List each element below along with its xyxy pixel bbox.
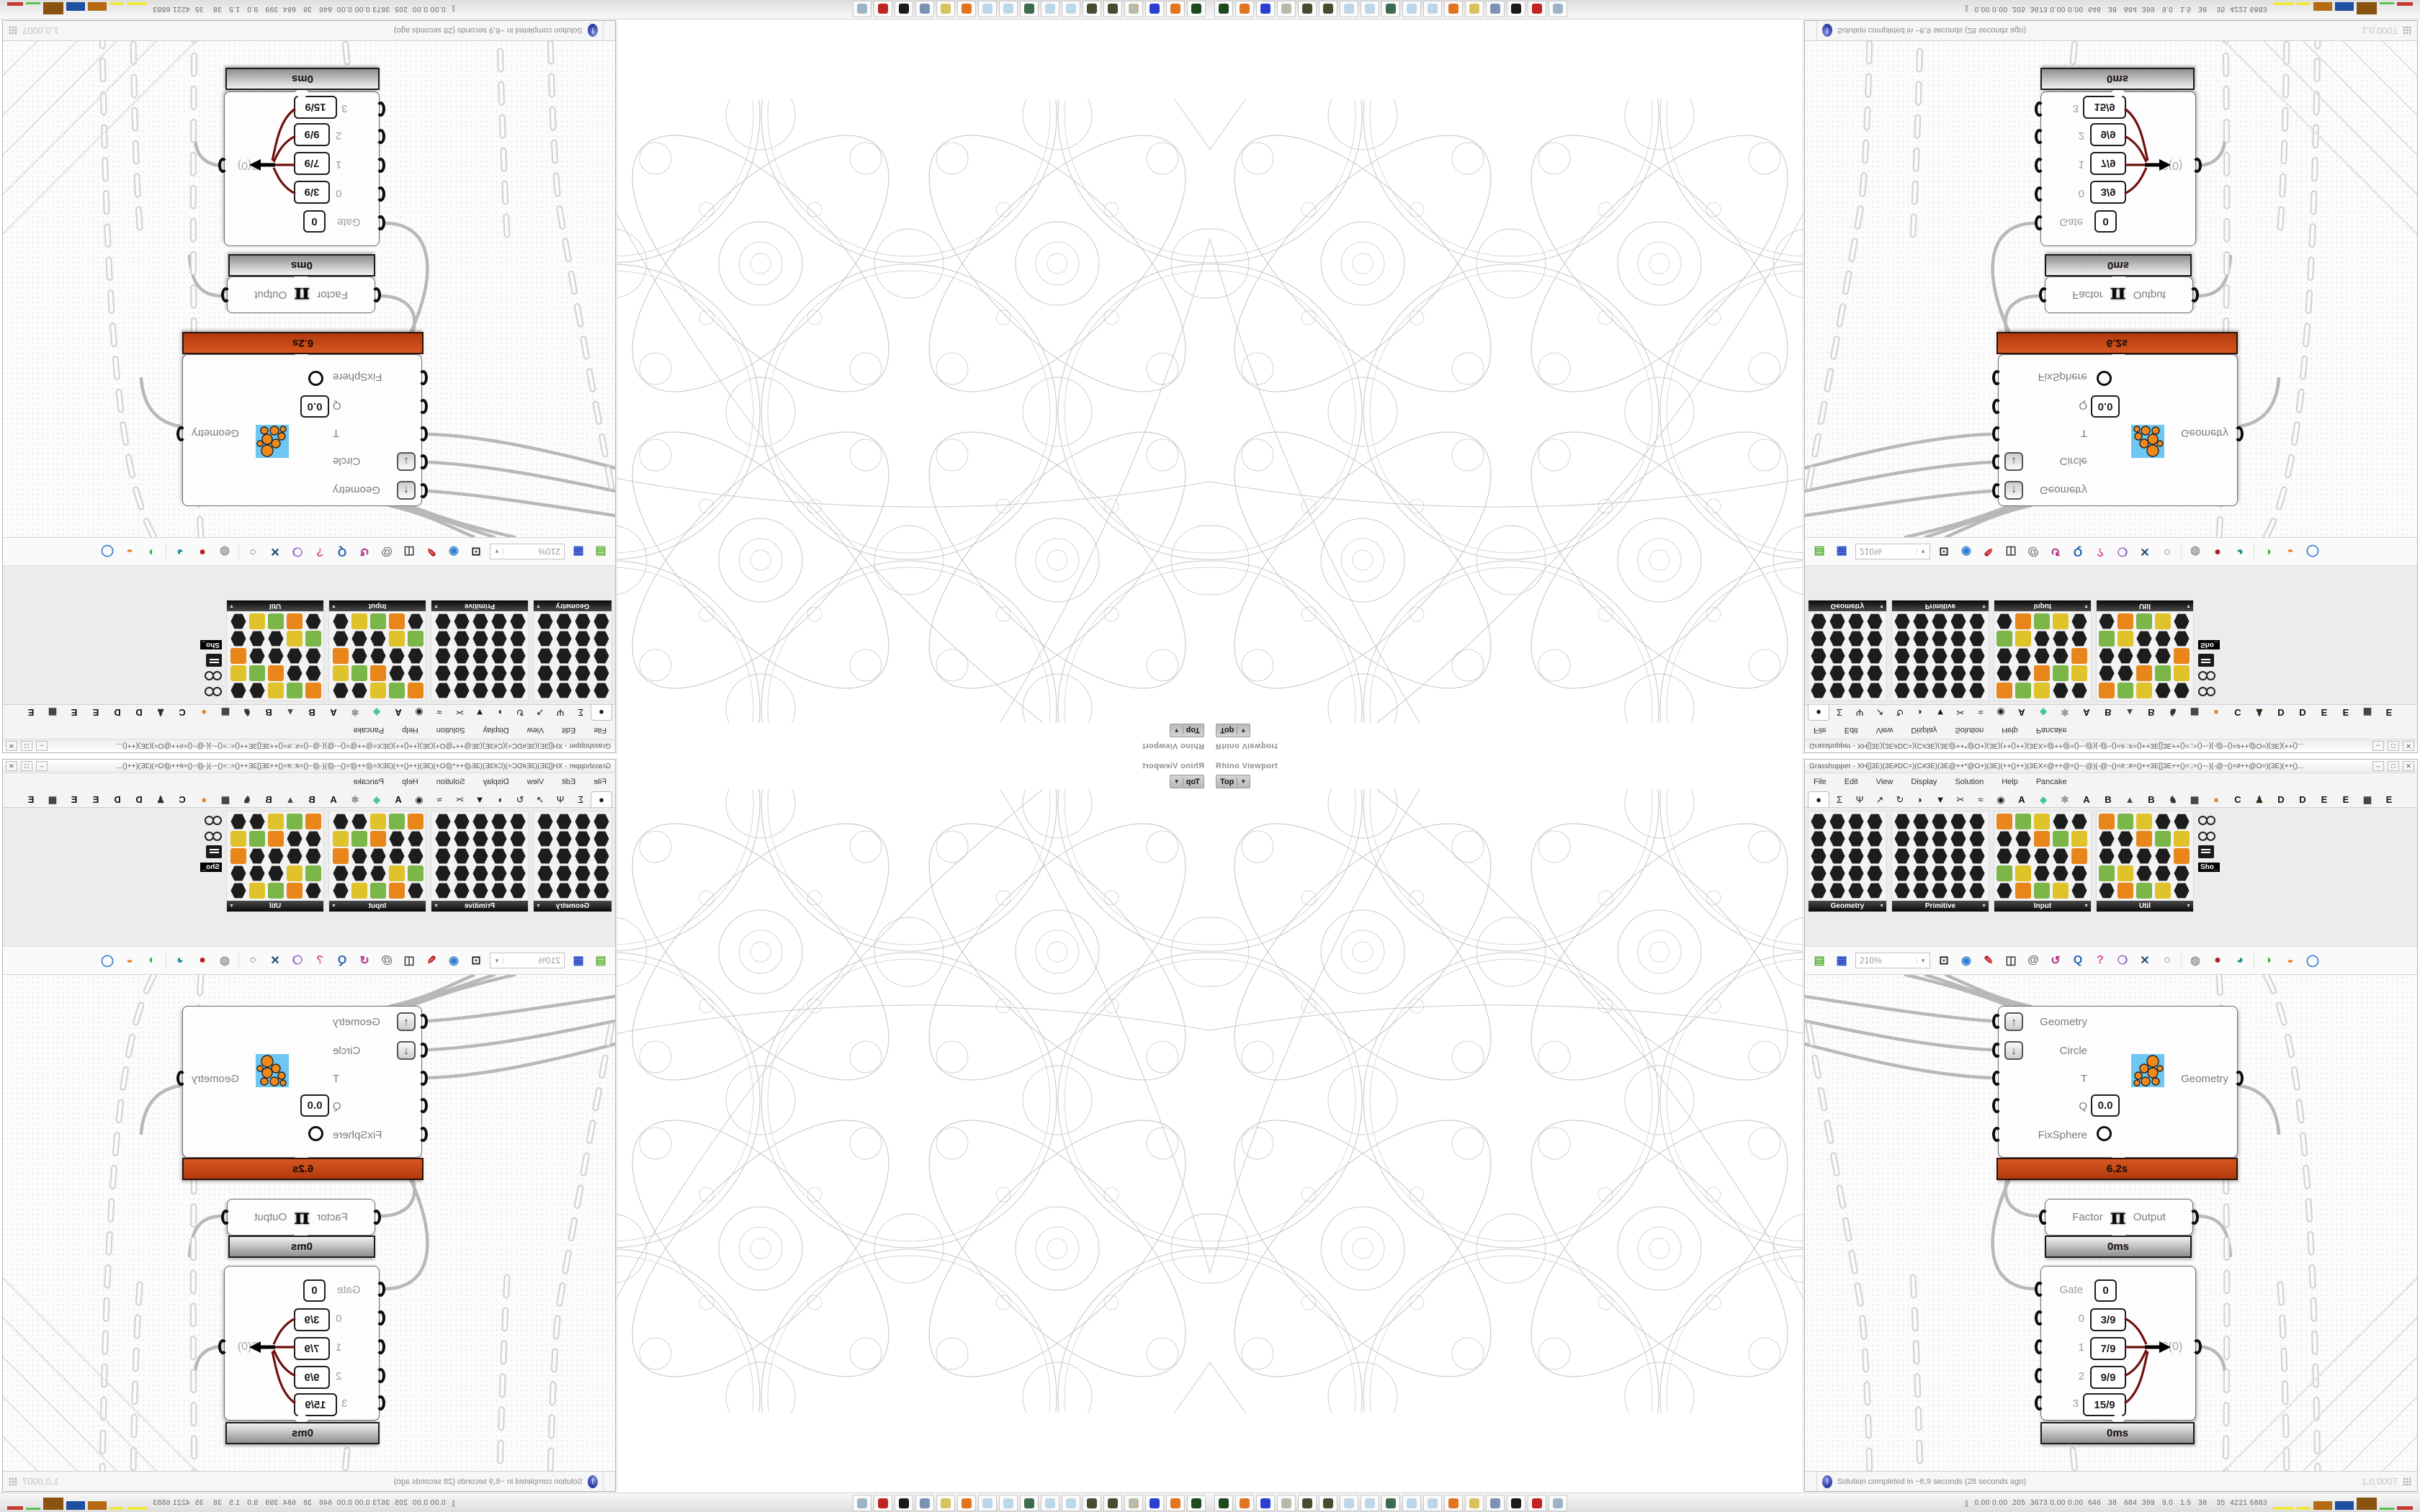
palette-icon[interactable] xyxy=(370,665,386,681)
tab-display[interactable]: ◉ xyxy=(1991,792,2011,807)
sketch-tool-icon[interactable]: ✎ xyxy=(1980,543,1997,560)
palette-icon[interactable] xyxy=(1932,665,1948,681)
input-socket-q[interactable] xyxy=(1992,1098,2002,1113)
preview-custom-icon[interactable]: ◍ xyxy=(2187,952,2204,969)
red-emblem-icon[interactable] xyxy=(1528,1,1546,17)
grasshopper-canvas[interactable]: ↑ ↓ Geometry Circle T Q FixSphere 0.0 xyxy=(3,41,615,537)
maximize-button[interactable]: □ xyxy=(2388,741,2399,751)
palette-icon[interactable] xyxy=(351,848,367,864)
floppy-64-icon[interactable] xyxy=(1145,1,1164,17)
plugin-tab-17[interactable]: E xyxy=(20,792,42,807)
plugin-tab-15[interactable]: E xyxy=(2335,792,2357,807)
palette-icon[interactable] xyxy=(287,613,302,629)
tab-vector[interactable]: ↗ xyxy=(1870,705,1890,720)
palette-icon[interactable] xyxy=(1867,683,1883,698)
canvas-zoom-select[interactable]: 210% ▼ xyxy=(490,953,565,968)
zoom-extents-icon[interactable]: ⊡ xyxy=(467,543,485,560)
palette-icon[interactable] xyxy=(2034,814,2050,829)
plugin-tab-10[interactable]: C xyxy=(171,705,193,720)
sketch-tool-icon[interactable]: ✎ xyxy=(423,952,440,969)
palette-icon[interactable] xyxy=(593,848,609,864)
palette-icon[interactable] xyxy=(2071,665,2087,681)
tab-mesh[interactable]: ▼ xyxy=(1930,792,1950,807)
palette-icon[interactable] xyxy=(1829,883,1845,899)
palette-icon[interactable] xyxy=(575,613,591,629)
input-socket-t[interactable] xyxy=(418,1071,428,1086)
tab-maths[interactable]: Σ xyxy=(570,792,591,807)
palette-icon[interactable] xyxy=(1894,865,1910,881)
chevron-down-icon[interactable]: ▼ xyxy=(1174,727,1180,734)
palette-icon[interactable] xyxy=(351,631,367,647)
cluster-icon[interactable]: ✕ xyxy=(266,543,284,560)
palette-icon[interactable] xyxy=(537,865,553,881)
palette-icon[interactable] xyxy=(435,831,451,847)
menu-display[interactable]: Display xyxy=(483,726,509,735)
rhino-viewport-pane[interactable]: Rhino Viewport Top ▼ xyxy=(1210,20,1803,755)
palette-icon[interactable] xyxy=(249,648,265,664)
gate-input-socket-3[interactable] xyxy=(2035,102,2044,117)
palette-icon[interactable] xyxy=(510,613,526,629)
palette-icon[interactable] xyxy=(2174,665,2190,681)
preview-custom-icon[interactable]: ◍ xyxy=(216,543,233,560)
tray-chevron-icon[interactable]: ∧∧ xyxy=(1964,1500,1968,1507)
globe-dark-icon-2[interactable] xyxy=(1083,1495,1101,1511)
palette-icon[interactable] xyxy=(305,865,321,881)
gha-loader-icon[interactable]: ↺ xyxy=(356,952,373,969)
palette-icon[interactable] xyxy=(1969,613,1985,629)
wireframe-preview-icon[interactable]: ◯ xyxy=(99,952,116,969)
folder-icon[interactable] xyxy=(936,1,955,17)
plugin-tab-5[interactable]: ▲ xyxy=(279,792,301,807)
palette-icon[interactable] xyxy=(537,631,553,647)
preview-settings-icon[interactable]: ◉ xyxy=(445,952,462,969)
palette-icon[interactable] xyxy=(1969,648,1985,664)
palette-icon[interactable] xyxy=(537,648,553,664)
palette-icon[interactable] xyxy=(2053,683,2069,698)
palette-icon[interactable] xyxy=(2015,648,2031,664)
penguin-icon[interactable] xyxy=(895,1495,913,1511)
palette-icon[interactable] xyxy=(2053,613,2069,629)
board-icon[interactable] xyxy=(2198,654,2214,667)
sketch-tool-icon[interactable]: ✎ xyxy=(1980,952,1997,969)
palette-icon[interactable] xyxy=(1829,613,1845,629)
plugin-tab-14[interactable]: E xyxy=(85,792,107,807)
plugin-tab-8[interactable]: ▦ xyxy=(215,705,236,720)
stream-gate-component[interactable]: Gate 0 0 3/9 1 7/9 2 9/9 3 15/9 xyxy=(224,1266,380,1421)
palette-icon[interactable] xyxy=(268,865,284,881)
palette-icon[interactable] xyxy=(1867,865,1883,881)
folder-icon[interactable] xyxy=(936,1495,955,1511)
palette-icon[interactable] xyxy=(268,883,284,899)
gate-input-socket-3[interactable] xyxy=(376,102,385,117)
firefox-icon-2[interactable] xyxy=(1444,1495,1463,1511)
palette-icon[interactable] xyxy=(2136,883,2152,899)
palette-icon[interactable] xyxy=(472,683,488,698)
gate-input-socket[interactable] xyxy=(2035,1282,2044,1297)
annotate-icon[interactable]: @ xyxy=(2025,543,2042,560)
palette-icon[interactable] xyxy=(370,814,386,829)
tab-intersect[interactable]: ✂ xyxy=(449,792,470,807)
menu-pancake[interactable]: Pancake xyxy=(2036,726,2067,735)
palette-icon[interactable] xyxy=(389,613,405,629)
palette-icon[interactable] xyxy=(370,683,386,698)
rhino-viewport-pane[interactable]: Rhino Viewport Top ▼ xyxy=(617,20,1210,755)
palette-icon[interactable] xyxy=(491,613,507,629)
firefox-icon-2[interactable] xyxy=(1444,1,1463,17)
gate-value-box[interactable]: 0 xyxy=(303,1279,326,1302)
palette-icon[interactable] xyxy=(2053,883,2069,899)
tab-vector[interactable]: ↗ xyxy=(530,792,550,807)
firefox-icon[interactable] xyxy=(1235,1,1254,17)
plugin-tab-9[interactable]: ● xyxy=(193,705,215,720)
palette-icon[interactable] xyxy=(389,848,405,864)
pi-output-socket[interactable] xyxy=(2190,1210,2199,1225)
tab-sets[interactable]: Ψ xyxy=(550,792,570,807)
shaded-preview-icon[interactable]: ◕ xyxy=(2231,543,2249,560)
palette-icon[interactable] xyxy=(333,883,349,899)
palette-icon[interactable] xyxy=(287,814,302,829)
q-value-box[interactable]: 0.0 xyxy=(2091,395,2120,418)
palette-icon[interactable] xyxy=(2174,883,2190,899)
palette-icon[interactable] xyxy=(575,648,591,664)
palette-icon[interactable] xyxy=(1950,613,1966,629)
palette-icon[interactable] xyxy=(408,683,423,698)
preview-settings-icon[interactable]: ◉ xyxy=(1958,543,1975,560)
palette-icon[interactable] xyxy=(1811,648,1827,664)
resize-grip[interactable] xyxy=(2403,1477,2411,1486)
palette-icon[interactable] xyxy=(1969,665,1985,681)
input-socket-geometry[interactable] xyxy=(1992,483,2002,498)
open-file-icon[interactable]: ▤ xyxy=(1811,952,1828,969)
palette-icon[interactable] xyxy=(2117,631,2133,647)
preview-on-icon[interactable]: ● xyxy=(194,543,211,560)
plugin-tab-17[interactable]: E xyxy=(2378,792,2400,807)
input-socket-q[interactable] xyxy=(418,399,428,414)
gate-input-socket-2[interactable] xyxy=(376,129,385,144)
palette-icon[interactable] xyxy=(510,814,526,829)
palette-icon[interactable] xyxy=(1848,648,1864,664)
grasshopper-canvas[interactable]: ↑ ↓ Geometry Circle T Q FixSphere 0.0 xyxy=(1805,41,2417,537)
tab-sets[interactable]: Ψ xyxy=(1850,705,1870,720)
bake-tool-icon[interactable]: ◫ xyxy=(400,952,418,969)
tab-transform[interactable]: ≈ xyxy=(429,792,449,807)
calculator-icon[interactable] xyxy=(1549,1,1567,17)
balloon-icon[interactable]: ❍ xyxy=(2114,952,2131,969)
tab-vector[interactable]: ↗ xyxy=(530,705,550,720)
palette-icon[interactable] xyxy=(454,683,470,698)
palette-icon[interactable] xyxy=(249,865,265,881)
palette-icon[interactable] xyxy=(435,665,451,681)
tab-surface[interactable]: ◗ xyxy=(1910,705,1930,720)
save-file-icon[interactable]: ▦ xyxy=(1833,543,1850,560)
palette-icon[interactable] xyxy=(1996,665,2012,681)
input-socket-fixsphere[interactable] xyxy=(1992,370,2002,385)
plugin-tab-11[interactable]: ♟ xyxy=(150,705,171,720)
palette-icon[interactable] xyxy=(351,665,367,681)
palette-icon[interactable] xyxy=(249,848,265,864)
preview-on-icon[interactable]: ● xyxy=(2209,952,2226,969)
palette-icon[interactable] xyxy=(1867,665,1883,681)
palette-icon[interactable] xyxy=(593,613,609,629)
palette-icon[interactable] xyxy=(575,883,591,899)
shaded-preview-icon[interactable]: ◕ xyxy=(171,543,189,560)
gate-input-socket-1[interactable] xyxy=(2035,1339,2044,1354)
tab-intersect[interactable]: ✂ xyxy=(1950,792,1971,807)
palette-icon[interactable] xyxy=(435,848,451,864)
palette-icon[interactable] xyxy=(1829,631,1845,647)
palette-icon[interactable] xyxy=(1829,848,1845,864)
palette-icon[interactable] xyxy=(1848,613,1864,629)
preview-off-icon[interactable]: ○ xyxy=(244,952,261,969)
terminal-icon[interactable] xyxy=(1187,1,1206,17)
palette-icon[interactable] xyxy=(2071,831,2087,847)
plugin-tab-6[interactable]: B xyxy=(258,792,279,807)
plugin-tab-3[interactable]: A xyxy=(323,705,344,720)
gate-input-socket-1[interactable] xyxy=(2035,158,2044,173)
palette-icon[interactable] xyxy=(2099,814,2115,829)
palette-icon[interactable] xyxy=(2136,848,2152,864)
palette-icon[interactable] xyxy=(305,631,321,647)
fixsphere-component[interactable]: ↑ ↓ Geometry Circle T Q FixSphere 0.0 xyxy=(182,1006,422,1158)
palette-icon[interactable] xyxy=(1969,814,1985,829)
palette-caption-util[interactable]: Util▼ xyxy=(2097,901,2193,912)
palette-icon[interactable] xyxy=(370,648,386,664)
fixsphere-component[interactable]: ↑ ↓ Geometry Circle T Q FixSphere 0.0 xyxy=(1998,1006,2238,1158)
palette-icon[interactable] xyxy=(1932,831,1948,847)
plugin-tab-10[interactable]: C xyxy=(2227,705,2249,720)
palette-icon[interactable] xyxy=(2071,613,2087,629)
maximize-button[interactable]: □ xyxy=(21,741,32,751)
grasshopper-canvas[interactable]: ↑ ↓ Geometry Circle T Q FixSphere 0.0 xyxy=(3,975,615,1471)
gate-input-socket-2[interactable] xyxy=(2035,129,2044,144)
menu-help[interactable]: Help xyxy=(2002,778,2018,786)
palette-icon[interactable] xyxy=(2053,831,2069,847)
folder-icon[interactable] xyxy=(1465,1,1484,17)
output-socket-geometry[interactable] xyxy=(2234,1071,2244,1086)
palette-icon[interactable] xyxy=(408,665,423,681)
globe-dark-icon[interactable] xyxy=(1298,1,1317,17)
notepad-icon-4[interactable] xyxy=(1423,1,1442,17)
palette-icon[interactable] xyxy=(510,683,526,698)
tab-transform[interactable]: ≈ xyxy=(1971,792,1991,807)
pi-input-socket[interactable] xyxy=(372,1210,381,1225)
palette-icon[interactable] xyxy=(1811,865,1827,881)
gate-value-box[interactable]: 0 xyxy=(303,210,326,233)
palette-icon[interactable] xyxy=(1867,883,1883,899)
palette-icon[interactable] xyxy=(575,865,591,881)
output-socket-geometry[interactable] xyxy=(176,426,186,441)
notepad-icon-3[interactable] xyxy=(1402,1495,1421,1511)
palette-icon[interactable] xyxy=(230,814,246,829)
gate-input-socket-0[interactable] xyxy=(2035,1310,2044,1326)
script-search-icon[interactable]: Q xyxy=(2069,543,2087,560)
penguin-icon[interactable] xyxy=(895,1,913,17)
notepad-icon-2[interactable] xyxy=(1041,1,1059,17)
palette-icon[interactable] xyxy=(408,848,423,864)
gate-input-socket[interactable] xyxy=(376,1282,385,1297)
preview-off-icon[interactable]: ○ xyxy=(244,543,261,560)
palette-icon[interactable] xyxy=(389,883,405,899)
palette-icon[interactable] xyxy=(1848,865,1864,881)
palette-icon[interactable] xyxy=(333,665,349,681)
notepad-icon[interactable] xyxy=(1340,1495,1358,1511)
display-settings-icon[interactable] xyxy=(1020,1495,1039,1511)
input-socket-circle[interactable] xyxy=(1992,1043,2002,1058)
zoom-extents-icon[interactable]: ⊡ xyxy=(467,952,485,969)
palette-icon[interactable] xyxy=(556,848,572,864)
gha-loader-icon[interactable]: ↺ xyxy=(356,543,373,560)
palette-icon[interactable] xyxy=(510,631,526,647)
palette-icon[interactable] xyxy=(537,665,553,681)
palette-icon[interactable] xyxy=(1950,814,1966,829)
plugin-tab-10[interactable]: C xyxy=(171,792,193,807)
palette-icon[interactable] xyxy=(2155,665,2171,681)
maximize-button[interactable]: □ xyxy=(21,761,32,771)
document-scroll-icon[interactable] xyxy=(1124,1,1143,17)
plugin-tab-1[interactable]: ◆ xyxy=(366,705,387,720)
firefox-icon[interactable] xyxy=(1235,1495,1254,1511)
menu-display[interactable]: Display xyxy=(483,778,509,786)
palette-icon[interactable] xyxy=(287,631,302,647)
plugin-tab-14[interactable]: E xyxy=(2313,792,2335,807)
penguin-icon[interactable] xyxy=(1507,1495,1525,1511)
palette-icon[interactable] xyxy=(510,665,526,681)
palette-icon[interactable] xyxy=(305,648,321,664)
palette-icon[interactable] xyxy=(1829,648,1845,664)
tab-surface[interactable]: ◗ xyxy=(490,792,510,807)
palette-icon[interactable] xyxy=(1894,831,1910,847)
input-socket-circle[interactable] xyxy=(418,1043,428,1058)
palette-icon[interactable] xyxy=(2155,848,2171,864)
open-file-icon[interactable]: ▤ xyxy=(592,543,609,560)
script-search-icon[interactable]: Q xyxy=(333,952,351,969)
palette-icon[interactable] xyxy=(472,831,488,847)
palette-icon[interactable] xyxy=(2015,865,2031,881)
terminal-icon[interactable] xyxy=(1187,1495,1206,1511)
plugin-tab-13[interactable]: D xyxy=(2292,705,2313,720)
gate-input-socket-2[interactable] xyxy=(2035,1368,2044,1383)
palette-icon[interactable] xyxy=(1950,665,1966,681)
gate-input-socket-1[interactable] xyxy=(376,158,385,173)
plugin-tab-5[interactable]: ▲ xyxy=(2119,792,2141,807)
palette-icon[interactable] xyxy=(2174,865,2190,881)
gate-input-socket-1[interactable] xyxy=(376,1339,385,1354)
palette-icon[interactable] xyxy=(1913,831,1929,847)
menu-file[interactable]: File xyxy=(1814,778,1827,786)
palette-icon[interactable] xyxy=(2174,648,2190,664)
palette-icon[interactable] xyxy=(1932,883,1948,899)
palette-icon[interactable] xyxy=(389,631,405,647)
palette-icon[interactable] xyxy=(2034,665,2050,681)
palette-icon[interactable] xyxy=(1932,613,1948,629)
gate-row-value-2[interactable]: 9/9 xyxy=(294,123,330,146)
open-file-icon[interactable]: ▤ xyxy=(592,952,609,969)
plugin-tab-11[interactable]: ♟ xyxy=(2249,792,2270,807)
pi-input-socket[interactable] xyxy=(2039,1210,2048,1225)
annotate-icon[interactable]: @ xyxy=(378,952,395,969)
palette-icon[interactable] xyxy=(351,814,367,829)
palette-icon[interactable] xyxy=(1867,631,1883,647)
palette-icon[interactable] xyxy=(1848,814,1864,829)
notepad-icon-4[interactable] xyxy=(978,1495,997,1511)
floppy-64-icon[interactable] xyxy=(1256,1495,1275,1511)
tab-transform[interactable]: ≈ xyxy=(1971,705,1991,720)
firefox-icon[interactable] xyxy=(1166,1,1185,17)
palette-icon[interactable] xyxy=(1811,831,1827,847)
palette-icon[interactable] xyxy=(556,883,572,899)
palette-icon[interactable] xyxy=(1811,683,1827,698)
palette-caption-input[interactable]: Input▼ xyxy=(1994,600,2091,611)
preview-on-icon[interactable]: ● xyxy=(2209,543,2226,560)
palette-icon[interactable] xyxy=(230,648,246,664)
plugin-tab-11[interactable]: ♟ xyxy=(150,792,171,807)
terminal-icon[interactable] xyxy=(1214,1,1233,17)
palette-caption-input[interactable]: Input▼ xyxy=(1994,901,2091,912)
palette-icon[interactable] xyxy=(370,613,386,629)
palette-icon[interactable] xyxy=(2174,814,2190,829)
shaded-preview-icon[interactable]: ◕ xyxy=(171,952,189,969)
palette-icon[interactable] xyxy=(287,883,302,899)
palette-icon[interactable] xyxy=(2071,631,2087,647)
glasses-icon[interactable] xyxy=(2198,687,2215,698)
palette-icon[interactable] xyxy=(249,665,265,681)
bake-tool-icon[interactable]: ◫ xyxy=(2002,952,2020,969)
menu-file[interactable]: File xyxy=(593,778,606,786)
annotate-icon[interactable]: @ xyxy=(2025,952,2042,969)
canvas-zoom-select[interactable]: 210% ▼ xyxy=(1855,544,1930,559)
ghosted-preview-icon[interactable]: ◑ xyxy=(2259,543,2277,560)
palette-icon[interactable] xyxy=(333,648,349,664)
plugin-tab-13[interactable]: D xyxy=(107,705,128,720)
palette-icon[interactable] xyxy=(1969,631,1985,647)
palette-icon[interactable] xyxy=(2117,665,2133,681)
menu-edit[interactable]: Edit xyxy=(562,726,575,735)
palette-icon[interactable] xyxy=(2053,848,2069,864)
ghosted-preview-icon[interactable]: ◑ xyxy=(143,543,161,560)
palette-icon[interactable] xyxy=(351,865,367,881)
input-socket-fixsphere[interactable] xyxy=(418,1127,428,1142)
palette-icon[interactable] xyxy=(435,683,451,698)
calculator-icon[interactable] xyxy=(1549,1495,1567,1511)
palette-icon[interactable] xyxy=(1913,648,1929,664)
gate-input-socket-2[interactable] xyxy=(376,1368,385,1383)
palette-icon[interactable] xyxy=(1894,848,1910,864)
plugin-tab-6[interactable]: B xyxy=(2141,705,2162,720)
rendered-preview-icon[interactable]: ◒ xyxy=(2282,543,2299,560)
palette-icon[interactable] xyxy=(2071,865,2087,881)
menu-help[interactable]: Help xyxy=(402,778,418,786)
menu-pancake[interactable]: Pancake xyxy=(2036,778,2067,786)
palette-icon[interactable] xyxy=(268,613,284,629)
menu-file[interactable]: File xyxy=(1814,726,1827,735)
palette-icon[interactable] xyxy=(435,865,451,881)
palette-icon[interactable] xyxy=(593,883,609,899)
palette-icon[interactable] xyxy=(435,814,451,829)
plugin-tab-15[interactable]: E xyxy=(63,705,85,720)
palette-icon[interactable] xyxy=(287,848,302,864)
plugin-tab-5[interactable]: ▲ xyxy=(279,705,301,720)
plugin-tab-8[interactable]: ▦ xyxy=(2184,705,2205,720)
input-socket-q[interactable] xyxy=(418,1098,428,1113)
palette-icon[interactable] xyxy=(1996,865,2012,881)
palette-icon[interactable] xyxy=(1913,665,1929,681)
gate-output-socket[interactable] xyxy=(2192,1339,2202,1354)
palette-icon[interactable] xyxy=(370,831,386,847)
palette-icon[interactable] xyxy=(2071,848,2087,864)
menu-pancake[interactable]: Pancake xyxy=(353,778,384,786)
palette-icon[interactable] xyxy=(1848,665,1864,681)
palette-icon[interactable] xyxy=(1950,631,1966,647)
